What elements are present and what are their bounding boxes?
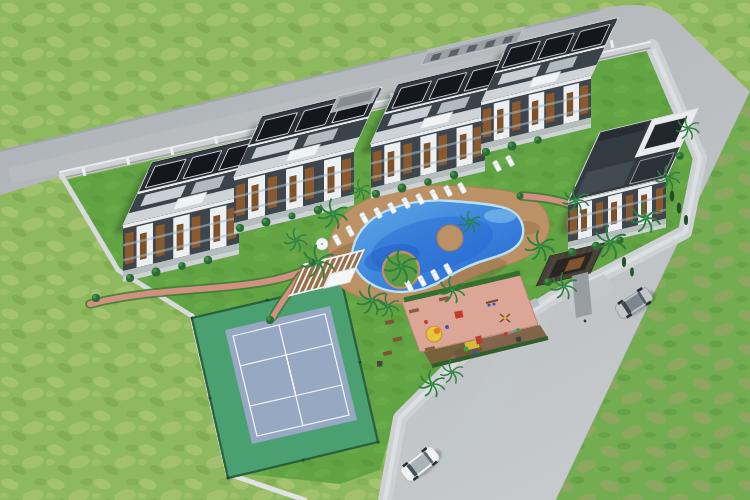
pedestrian [584,320,587,323]
aerial-render-image [0,0,750,500]
pool-sun-deck-circle [437,225,463,251]
scene-canvas [0,0,750,500]
pool-umbrella [316,238,328,250]
